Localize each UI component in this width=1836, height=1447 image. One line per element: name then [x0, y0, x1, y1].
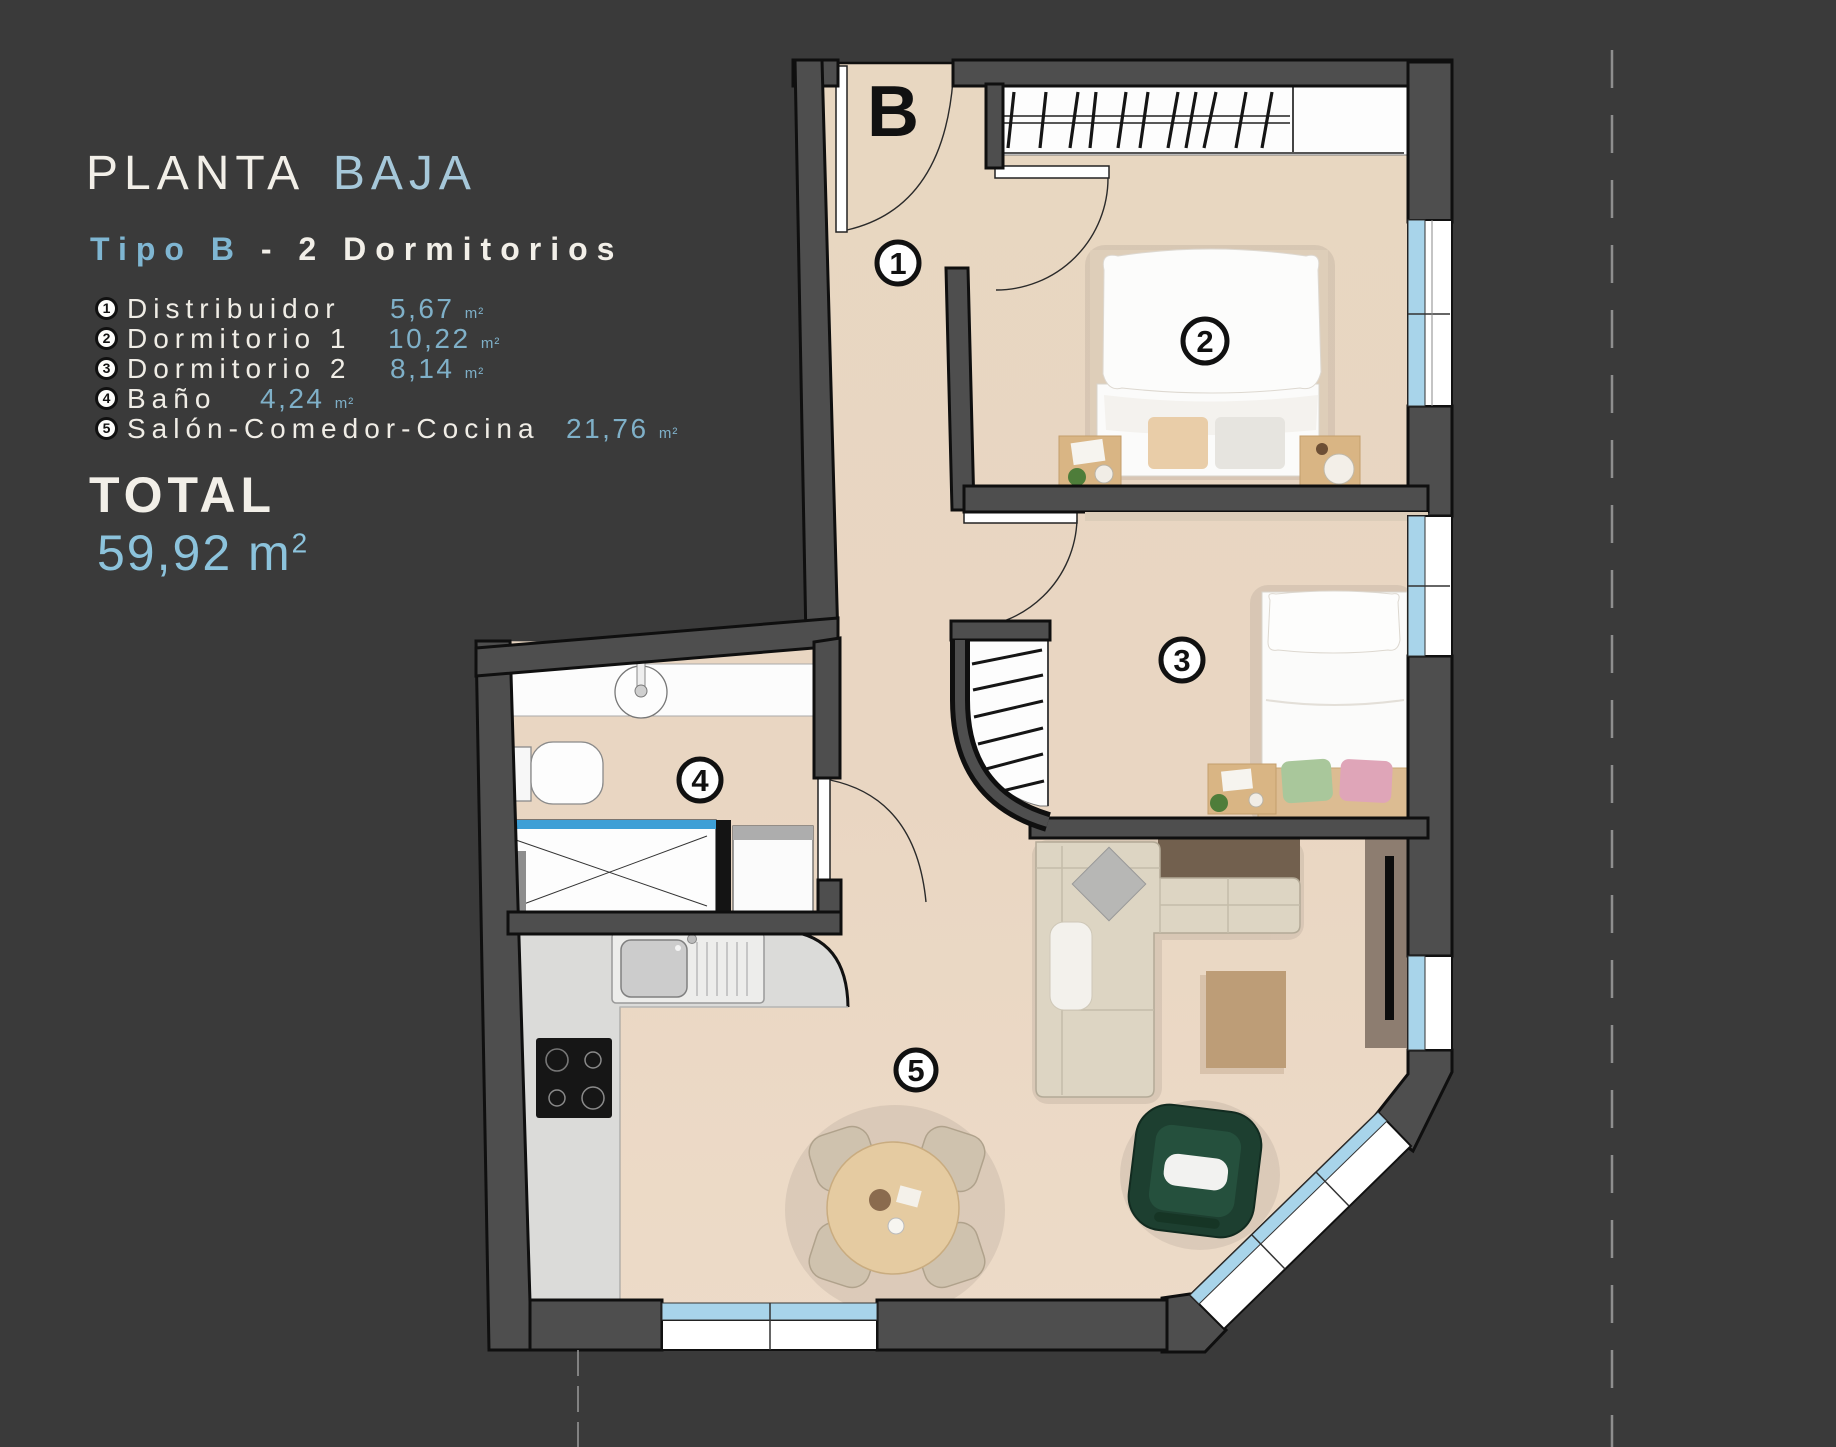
svg-text:4: 4: [691, 763, 709, 798]
svg-text:2: 2: [1196, 324, 1213, 359]
svg-text:3: 3: [1173, 643, 1190, 678]
svg-text:1: 1: [889, 246, 906, 281]
svg-text:5: 5: [907, 1053, 924, 1088]
svg-text:B: B: [867, 72, 919, 152]
